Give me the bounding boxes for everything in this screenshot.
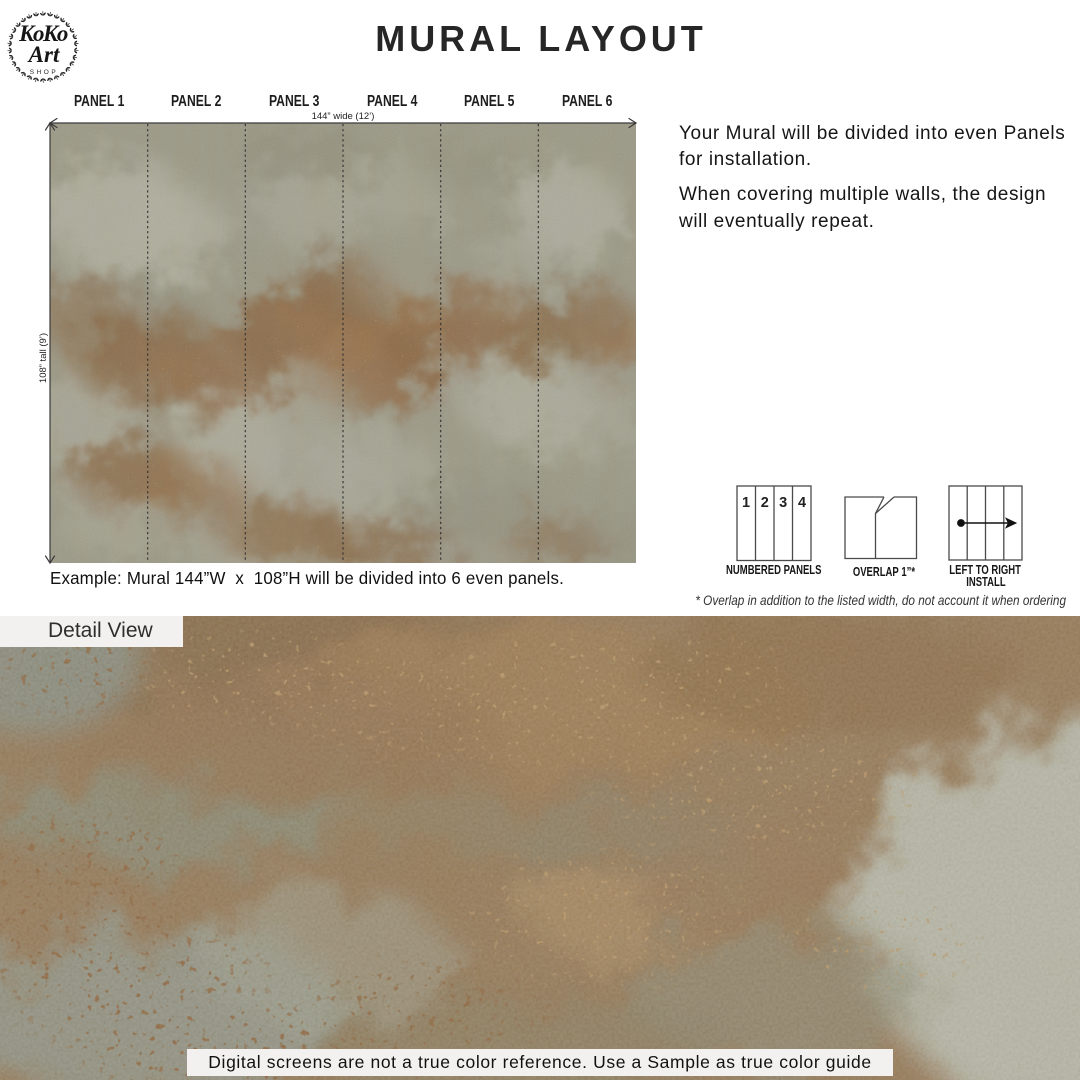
svg-text:1: 1 bbox=[742, 495, 750, 511]
svg-text:SHOP: SHOP bbox=[30, 69, 58, 76]
svg-text:2: 2 bbox=[761, 495, 769, 511]
svg-text:3: 3 bbox=[779, 495, 787, 511]
svg-text:144” wide (12’): 144” wide (12’) bbox=[312, 111, 375, 122]
svg-text:108” tall (9’): 108” tall (9’) bbox=[38, 333, 49, 383]
svg-text:4: 4 bbox=[798, 495, 806, 511]
